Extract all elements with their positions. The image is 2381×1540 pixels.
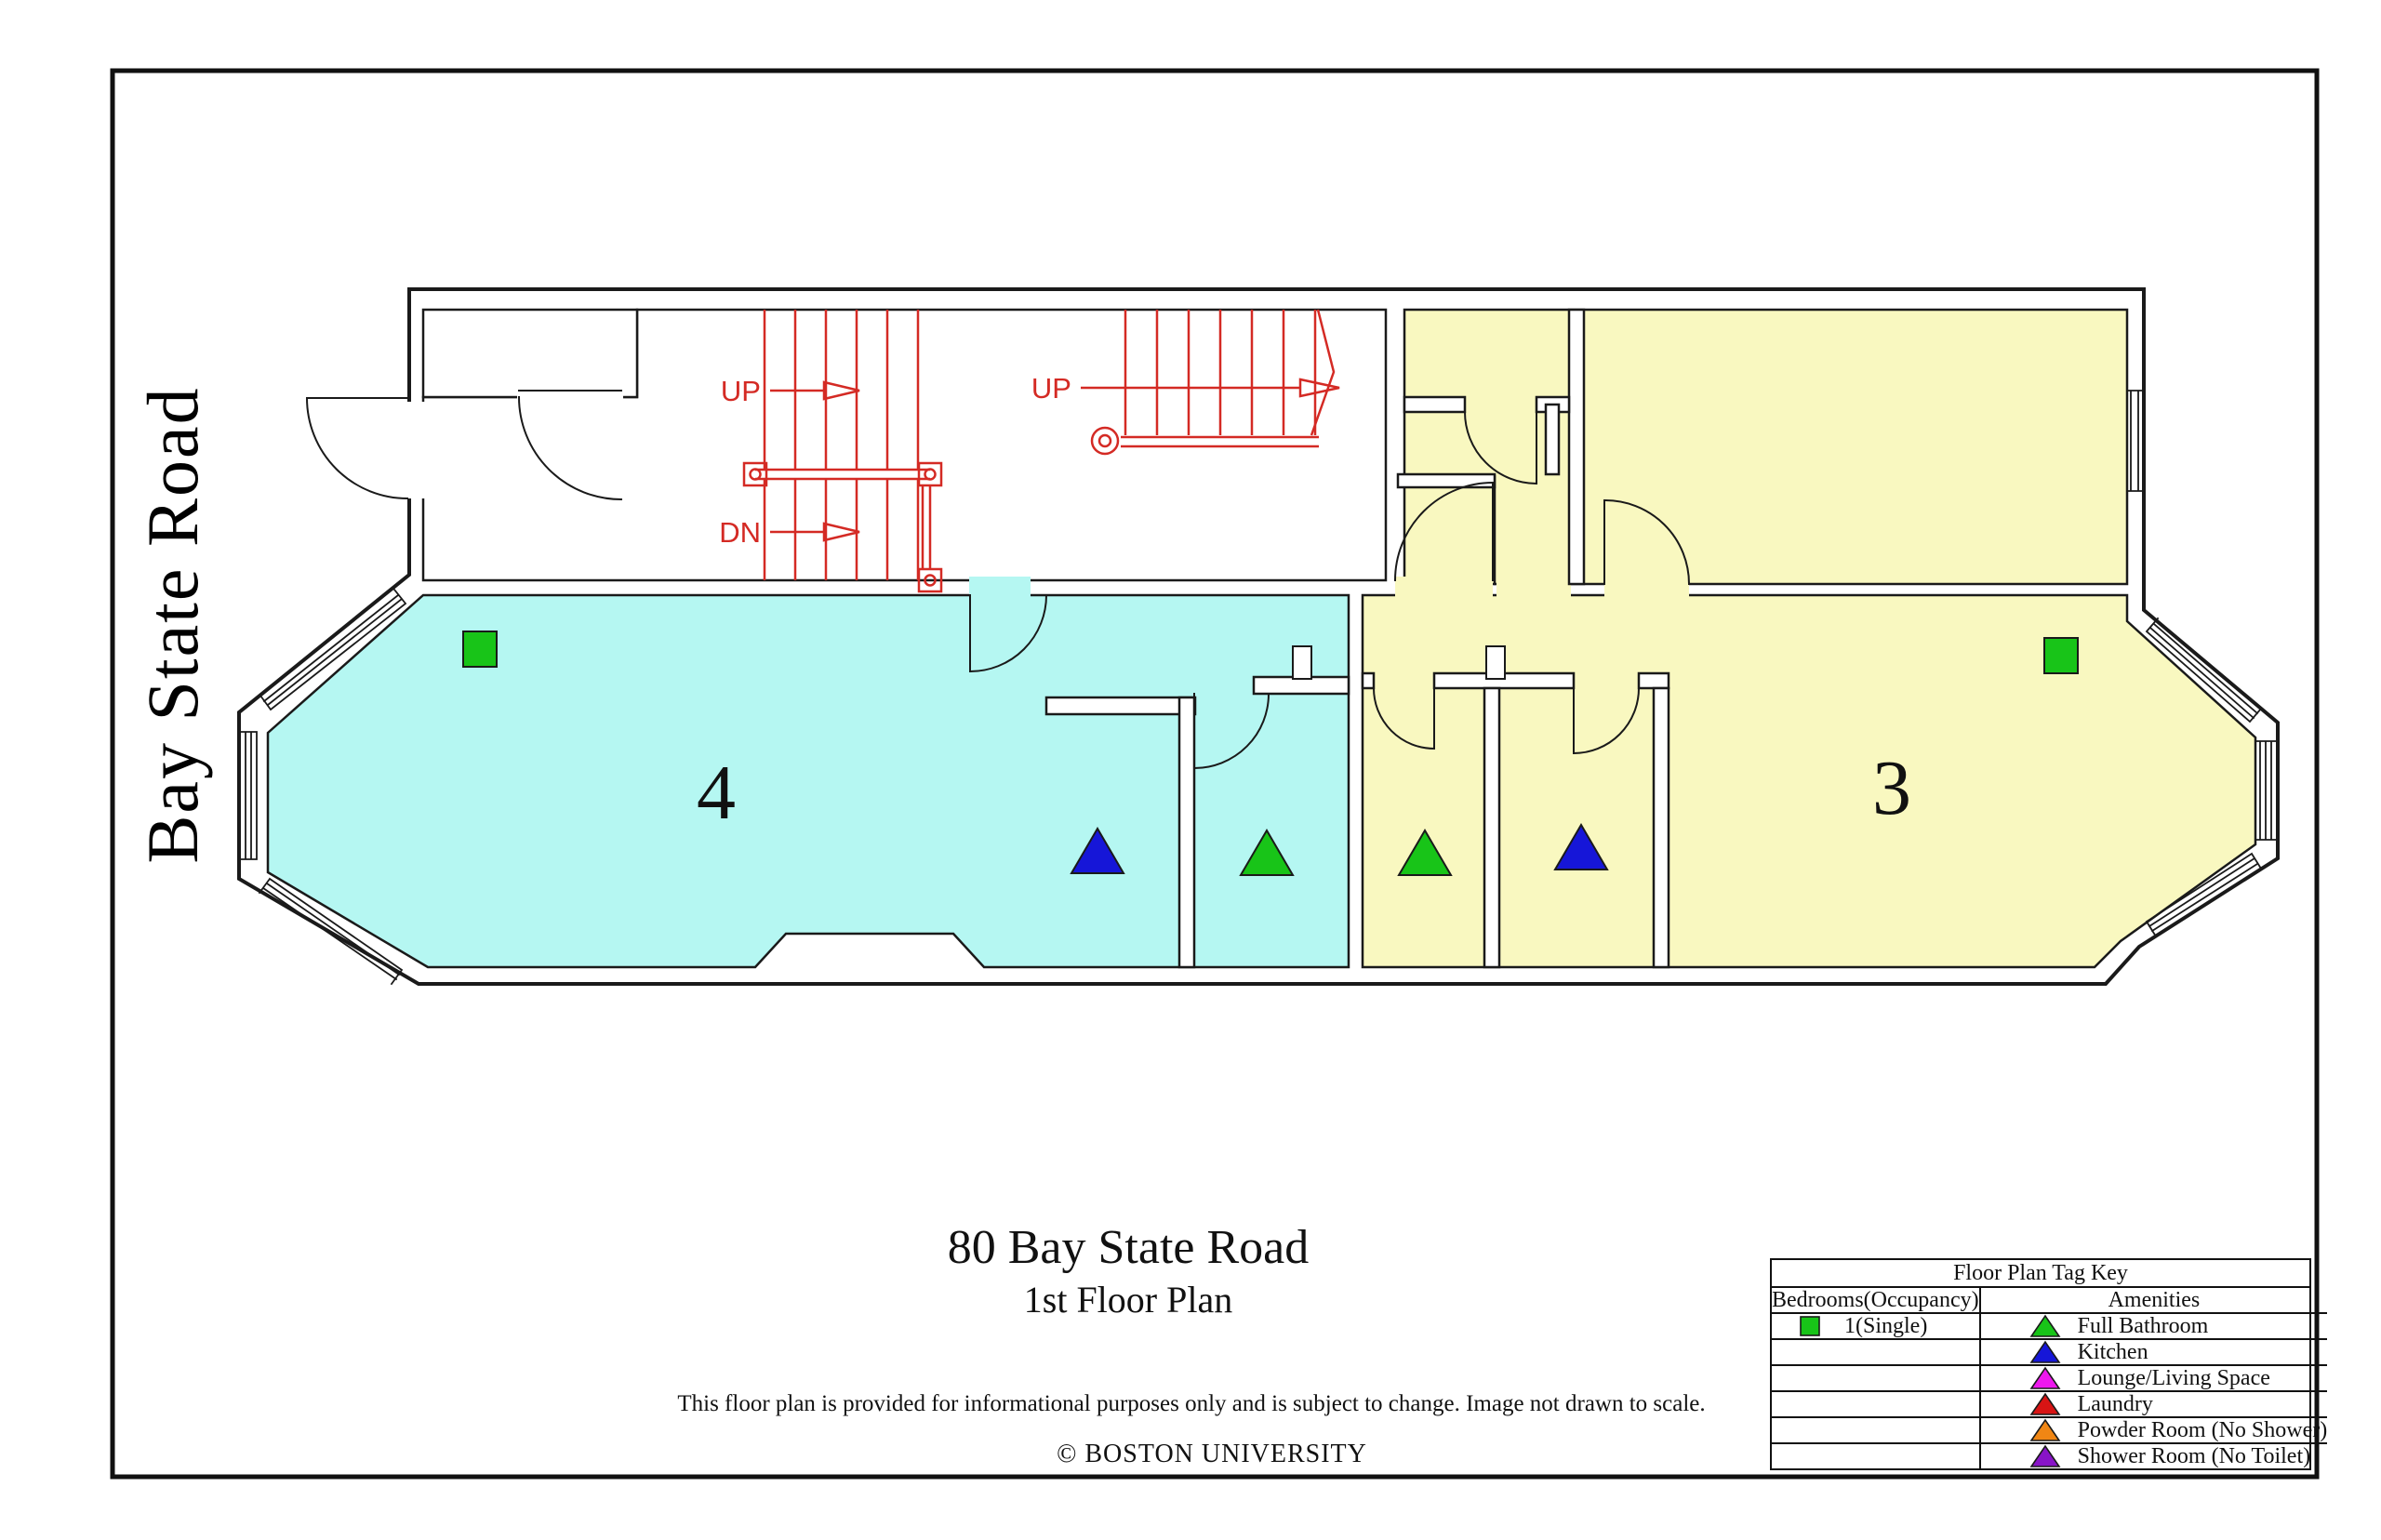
legend-bedroom-row: 1(Single) [1772, 1312, 1979, 1338]
legend-amenity-row: Kitchen [1981, 1338, 2328, 1364]
title-block: 80 Bay State Road 1st Floor Plan [948, 1220, 1310, 1324]
legend-bedroom-row [1772, 1364, 1979, 1390]
legend-amenity-label: Laundry [2078, 1392, 2153, 1416]
legend-table: Floor Plan Tag Key Bedrooms(Occupancy) 1… [1770, 1258, 2311, 1470]
unit-3-number: 3 [1872, 745, 1911, 831]
legend-bedroom-label: 1(Single) [1844, 1314, 1927, 1338]
amenity-triangle-icon [2029, 1418, 2061, 1442]
legend-amenities-column: Amenities Full BathroomKitchenLounge/Liv… [1981, 1288, 2328, 1468]
legend-title: Floor Plan Tag Key [1772, 1260, 2309, 1288]
amenity-triangle-icon [2029, 1314, 2061, 1338]
legend-amenity-row: Lounge/Living Space [1981, 1364, 2328, 1390]
bedroom-single-tag [463, 631, 497, 667]
legend-bedrooms-header: Bedrooms(Occupancy) [1772, 1288, 1979, 1312]
floor-title: 1st Floor Plan [948, 1276, 1310, 1324]
disclaimer-text: This floor plan is provided for informat… [677, 1391, 1705, 1417]
stair-label-up-left: UP [721, 375, 761, 407]
building-title: 80 Bay State Road [948, 1220, 1310, 1276]
amenity-triangle-icon [2029, 1366, 2061, 1390]
legend-amenity-label: Shower Room (No Toilet) [2078, 1444, 2311, 1468]
legend-bedroom-row [1772, 1338, 1979, 1364]
legend-amenity-row: Laundry [1981, 1390, 2328, 1416]
legend-bedrooms-column: Bedrooms(Occupancy) 1(Single) [1772, 1288, 1981, 1468]
legend-bedroom-row [1772, 1390, 1979, 1416]
legend-amenity-label: Powder Room (No Shower) [2078, 1418, 2328, 1442]
legend-amenity-row: Full Bathroom [1981, 1312, 2328, 1338]
stair-label-dn-left: DN [719, 516, 761, 549]
legend-amenities-header: Amenities [1981, 1288, 2328, 1312]
legend-bedroom-row [1772, 1416, 1979, 1442]
copyright-text: © BOSTON UNIVERSITY [1057, 1440, 1367, 1469]
unit-3-hallway [1496, 479, 1571, 600]
amenity-triangle-icon [2029, 1392, 2061, 1416]
legend-amenity-label: Full Bathroom [2078, 1314, 2209, 1338]
legend-amenity-label: Lounge/Living Space [2078, 1366, 2270, 1390]
amenity-triangle-icon [2029, 1444, 2061, 1468]
legend-amenity-row: Shower Room (No Toilet) [1981, 1442, 2328, 1468]
vestibule [423, 310, 637, 397]
legend-amenity-label: Kitchen [2078, 1340, 2148, 1364]
bedroom-single-tag [2044, 638, 2078, 673]
bedroom-square-icon [1796, 1314, 1828, 1338]
floor-plan-page: { "page": { "street_label": "Bay State R… [0, 0, 2381, 1540]
legend-amenity-row: Powder Room (No Shower) [1981, 1416, 2328, 1442]
legend-bedroom-row [1772, 1442, 1979, 1468]
unit-4-number: 4 [697, 750, 736, 836]
stair-label-up-right: UP [1031, 372, 1071, 405]
amenity-triangle-icon [2029, 1340, 2061, 1364]
